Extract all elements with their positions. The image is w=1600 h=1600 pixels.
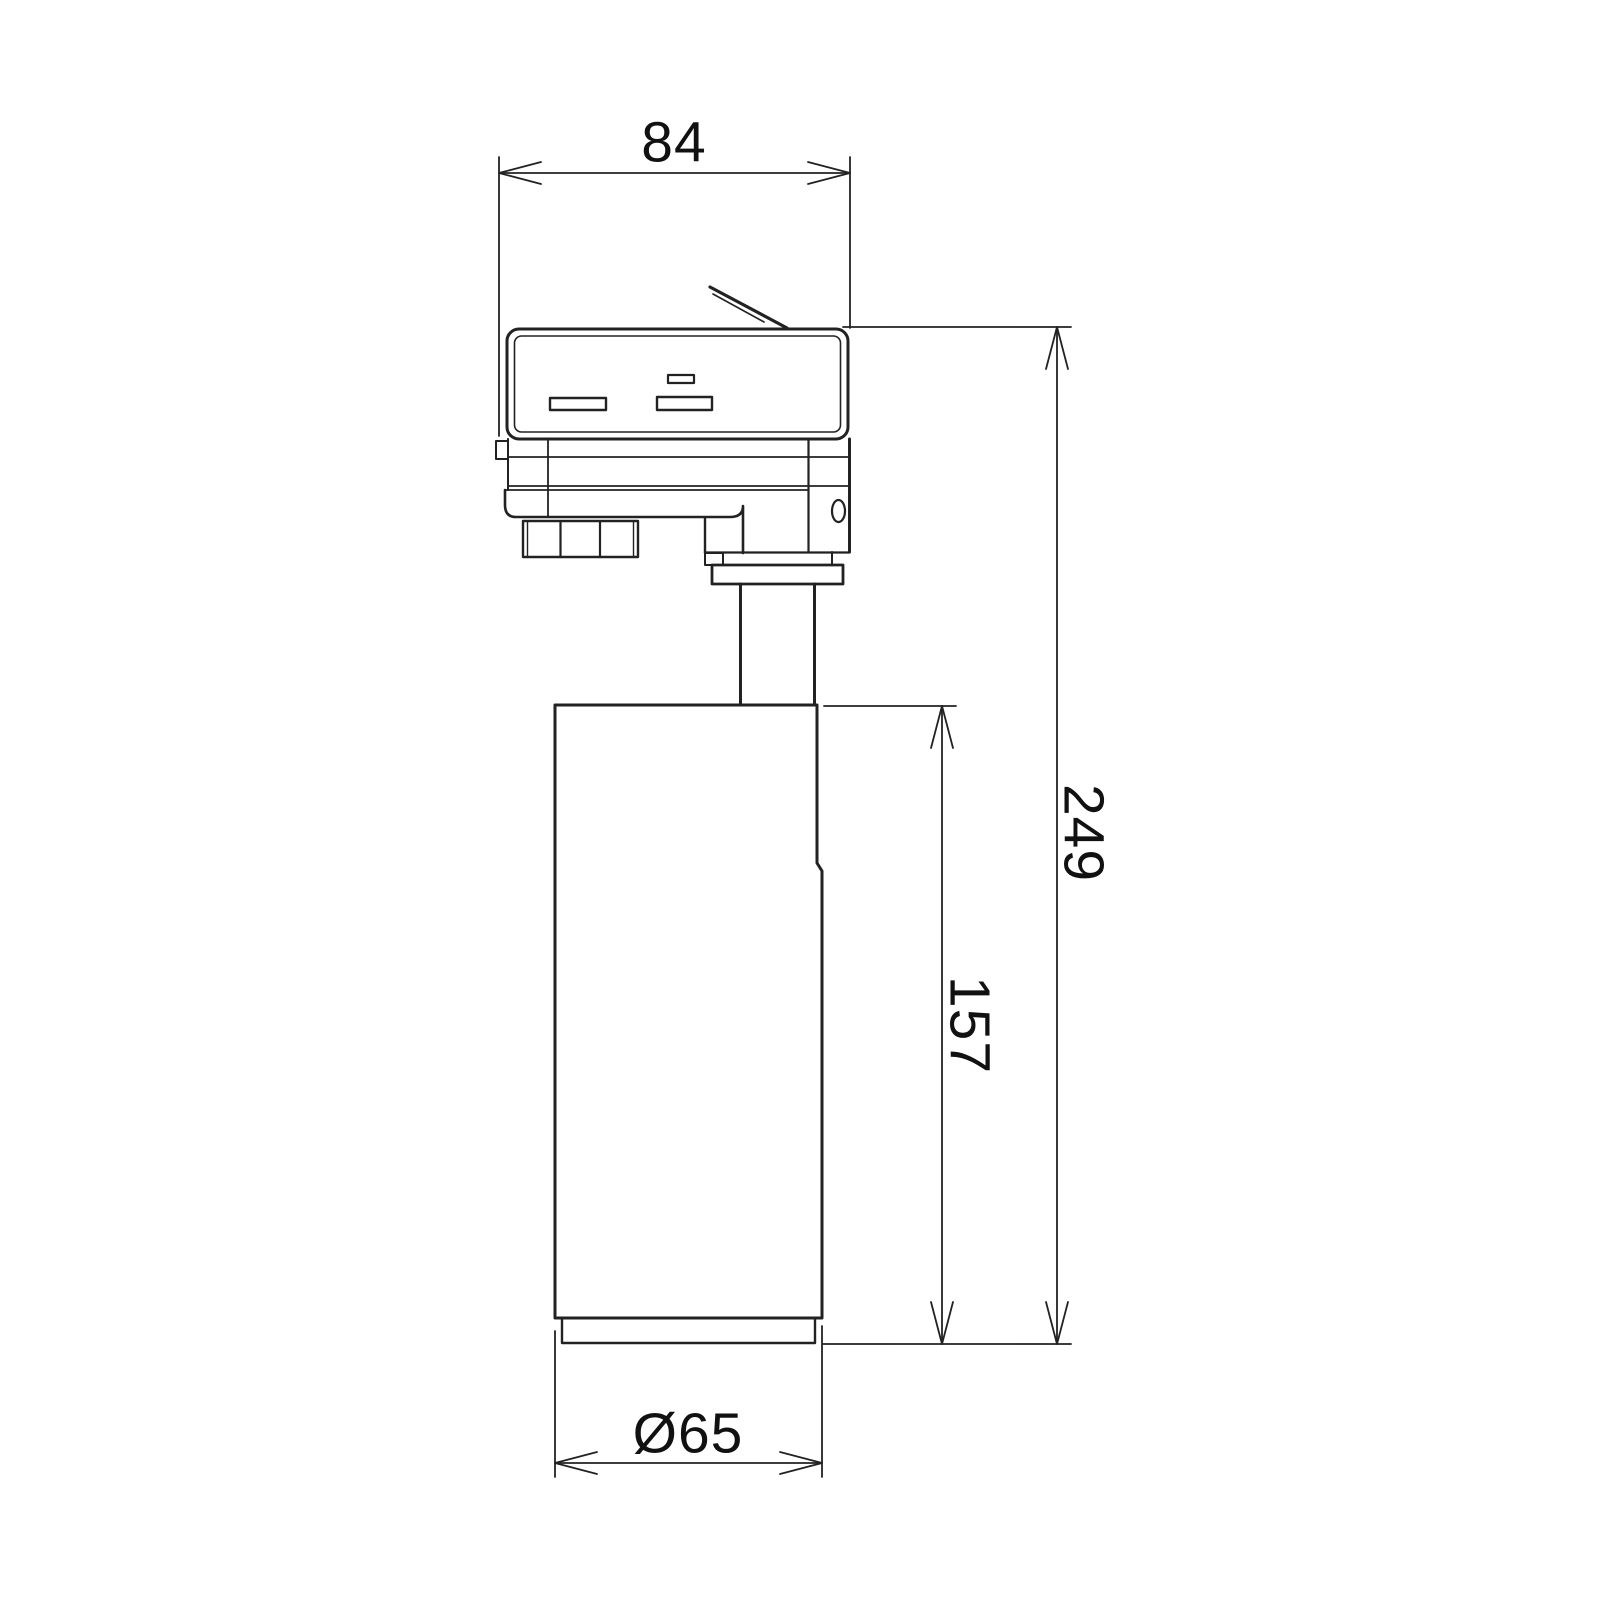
flange-step-left <box>705 553 723 565</box>
track-adapter <box>496 287 850 584</box>
drawing-linework <box>0 0 1600 1600</box>
teeth-outline <box>523 521 638 557</box>
dimension-label-body-height: 157 <box>941 976 998 1074</box>
mounting-flange <box>712 565 843 584</box>
dimension-label-body-diameter: Ø65 <box>633 1406 744 1463</box>
contact-teeth <box>523 521 638 557</box>
right-block-hole <box>832 500 845 522</box>
adapter-contact-slot-small <box>668 375 694 383</box>
lamp-body-outline <box>555 705 822 1318</box>
dimension-label-overall-height: 249 <box>1055 784 1112 882</box>
adapter-contact-slot-right <box>657 397 712 410</box>
dimension-249 <box>823 327 1071 1344</box>
adapter-release-lever-edge <box>713 294 764 322</box>
adapter-release-lever <box>710 287 787 328</box>
dimension-157 <box>824 706 956 1344</box>
dimension-84 <box>499 157 850 436</box>
lamp-body <box>555 705 822 1343</box>
engineering-drawing-canvas: 84 249 157 Ø65 <box>0 0 1600 1600</box>
mounting-stem <box>741 584 815 705</box>
lamp-trim-ring <box>562 1318 815 1343</box>
dimension-label-adapter-width: 84 <box>641 115 706 172</box>
adapter-contact-slot-left <box>550 398 606 410</box>
adapter-side-tab <box>496 441 508 459</box>
